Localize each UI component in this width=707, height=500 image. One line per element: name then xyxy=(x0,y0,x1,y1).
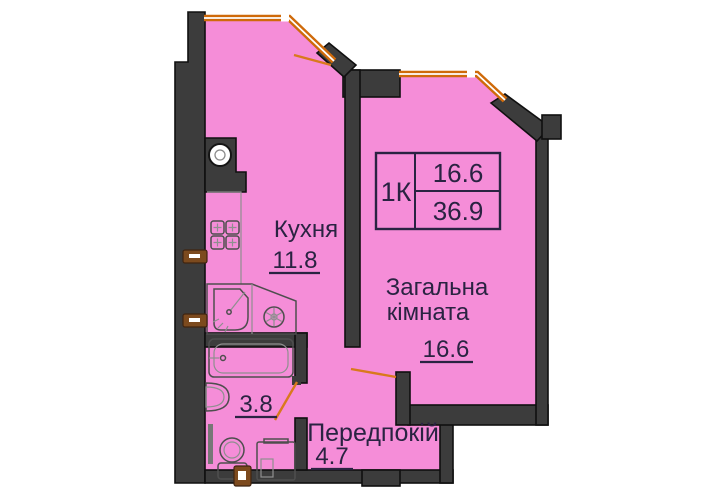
left-wall-marker-lower-dash xyxy=(189,318,200,322)
kitchen-area: 11.8 xyxy=(273,247,318,274)
info-area-bottom: 36.9 xyxy=(433,196,484,226)
bathroom-area: 3.8 xyxy=(239,391,272,418)
living-room-label-line2: кімната xyxy=(387,299,470,326)
towel-rail-icon xyxy=(208,424,213,464)
left-wall xyxy=(175,12,205,483)
right-wall xyxy=(536,130,548,425)
hallway-right-wall xyxy=(440,420,453,483)
bathroom-right-wall-upper xyxy=(295,333,307,383)
living-room-window-joint xyxy=(467,71,475,78)
hallway-living-stub-wall xyxy=(396,372,410,425)
bottom-wall-step xyxy=(362,470,400,486)
bathroom-right-wall-lower xyxy=(295,418,307,470)
entrance-marker-dash xyxy=(238,471,246,480)
kitchen-living-divider-wall xyxy=(345,70,360,347)
hallway-area: 4.7 xyxy=(315,443,348,470)
kitchen-label: Кухня xyxy=(274,216,338,243)
apartment-type-label: 1К xyxy=(381,177,412,207)
floor-plan: 1К 16.6 36.9 Кухня 11.8 Загальна кімната… xyxy=(0,0,707,500)
left-wall-marker-upper-dash xyxy=(189,254,200,258)
living-room-label-line1: Загальна xyxy=(386,274,489,301)
kitchen-window-joint xyxy=(281,15,289,22)
floor-plan-page: 1К 16.6 36.9 Кухня 11.8 Загальна кімната… xyxy=(0,0,707,500)
info-area-top: 16.6 xyxy=(433,158,484,188)
living-room-area: 16.6 xyxy=(423,336,470,363)
top-right-corner-step xyxy=(542,115,561,139)
vent-icon xyxy=(209,144,231,166)
info-table: 1К 16.6 36.9 xyxy=(376,153,500,229)
